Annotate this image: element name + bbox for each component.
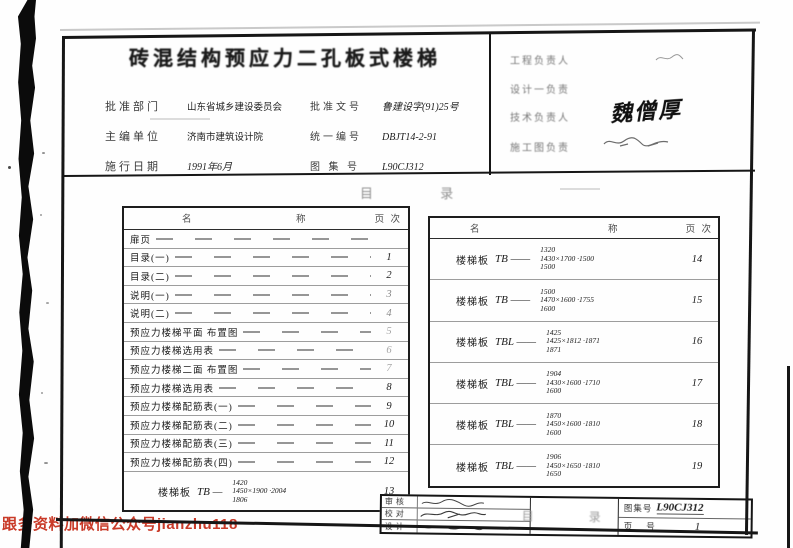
toc-row-page: 10	[376, 419, 402, 430]
toc-row-page: 16	[684, 336, 710, 347]
toc-row-stair-plank: 楼梯板 TBL —— 1906 1450×1650 ·1810 1650 19	[430, 445, 718, 486]
section-heading: 目 录	[360, 183, 485, 202]
leader-line	[175, 275, 371, 277]
toc-row-name: 楼梯板	[456, 293, 489, 308]
toc-row-name: 预应力楼梯二面 布置图	[130, 362, 238, 376]
toc-row: 扉页	[124, 230, 408, 249]
title-block-label: 校对	[382, 508, 418, 520]
plank-designation-stack: 1420 1450×1900 ·2004 1806	[232, 479, 286, 505]
leader-line	[175, 256, 371, 258]
signature-scribble-icon	[600, 134, 672, 150]
toc-row: 预应力楼梯选用表6	[124, 342, 408, 361]
toc-row-name: 预应力楼梯平面 布置图	[130, 325, 238, 339]
toc-row-page: 14	[684, 254, 710, 265]
toc-row-page: 1	[376, 252, 402, 263]
field-value: 山东省城乡建设委员会	[187, 103, 282, 113]
plank-designation-stack: 1500 1470×1600 ·1755 1600	[540, 288, 594, 314]
field-effective-date: 施行日期 1991年6月	[105, 157, 232, 175]
field-label: 批准部门	[105, 98, 183, 114]
leader-line	[175, 294, 371, 296]
toc-row-stair-plank: 楼梯板 TBL —— 1904 1430×1600 ·1710 1600 17	[430, 363, 718, 404]
toc-table-left: 名 称 页 次 扉页 目录(一)1 目录(二)2 说明(一)3 说明(二)4 预…	[122, 206, 410, 512]
toc-row-page: 3	[376, 289, 402, 300]
leader-line	[219, 349, 371, 351]
toc-row-stair-plank: 楼梯板 TB — 1420 1450×1900 ·2004 1806 13	[124, 472, 408, 512]
scan-speck	[46, 302, 49, 304]
toc-row-stair-plank: 楼梯板 TB —— 1500 1470×1600 ·1755 1600 15	[430, 280, 718, 321]
stack-line: 1600	[540, 305, 594, 314]
field-value: 鲁建设字(91)25号	[382, 102, 459, 113]
plank-designation-stack: 1320 1430×1700 ·1500 1500	[540, 246, 594, 272]
field-label: 技术负责人	[510, 109, 570, 124]
scan-speck	[41, 392, 43, 394]
atlas-number-row: 图集号 L90CJ312	[619, 499, 751, 519]
plank-designation-stack: 1906 1450×1650 ·1810 1650	[546, 453, 600, 479]
stack-line: 1500	[540, 263, 594, 272]
toc-row: 说明(二)4	[124, 304, 408, 323]
leader-line	[156, 238, 371, 240]
stack-line: 1600	[546, 387, 600, 396]
toc-header-name-b: 称	[296, 211, 306, 225]
toc-row-page: 15	[684, 295, 710, 306]
plank-model: TB ——	[495, 253, 530, 265]
toc-row: 目录(一)1	[124, 249, 408, 268]
field-label: 统一编号	[310, 128, 378, 143]
toc-row-name: 楼梯板	[456, 334, 489, 349]
toc-row-name: 目录(二)	[130, 269, 170, 283]
leader-line	[243, 368, 371, 370]
leader-line	[243, 331, 371, 333]
leader-line	[238, 442, 371, 444]
toc-header-page: 页 次	[686, 221, 713, 235]
frame-left-line	[60, 37, 65, 548]
field-project-leader: 工程负责人	[510, 51, 570, 69]
toc-row: 预应力楼梯配筋表(四)12	[124, 453, 408, 472]
toc-header-name-b: 称	[608, 221, 618, 235]
toc-row-name: 楼梯板	[456, 252, 489, 267]
toc-header-row: 名 称 页 次	[430, 218, 718, 239]
field-design-leader: 设计一负责	[510, 80, 570, 98]
toc-row-page: 11	[376, 438, 402, 449]
toc-table-right: 名 称 页 次 楼梯板 TB —— 1320 1430×1700 ·1500 1…	[428, 216, 720, 488]
scan-right-edge-line	[787, 366, 790, 548]
signature-scribble-icon	[652, 52, 686, 64]
field-technical-leader: 技术负责人	[510, 108, 570, 126]
toc-row-name: 预应力楼梯配筋表(二)	[130, 418, 233, 432]
header-vertical-divider	[489, 33, 491, 175]
toc-row-name: 预应力楼梯选用表	[130, 381, 214, 395]
toc-row-page: 12	[376, 456, 402, 467]
scan-streak	[150, 118, 210, 120]
stack-line: 1600	[546, 429, 600, 438]
plank-model: TBL ——	[495, 460, 536, 472]
toc-row-stair-plank: 楼梯板 TB —— 1320 1430×1700 ·1500 1500 14	[430, 239, 718, 280]
plank-model: TBL ——	[495, 418, 536, 430]
toc-row: 预应力楼梯选用表8	[124, 379, 408, 398]
field-label: 施行日期	[105, 158, 183, 174]
toc-row-page: 17	[684, 378, 710, 389]
toc-header-row: 名 称 页 次	[124, 208, 408, 230]
field-value: 1991年6月	[187, 162, 232, 173]
stack-line: 1650	[546, 470, 600, 479]
toc-row-name: 目录(一)	[130, 250, 170, 264]
toc-row-page: 9	[376, 401, 402, 412]
plank-model: TBL ——	[495, 336, 536, 348]
field-drawing-leader: 施工图负责	[510, 138, 570, 156]
atlas-number-label: 图集号	[624, 502, 653, 514]
toc-row-page: 6	[376, 345, 402, 356]
toc-row: 目录(二)2	[124, 267, 408, 286]
toc-row-page: 2	[376, 270, 402, 281]
field-value: DBJT14-2-91	[382, 132, 437, 143]
watermark-text: 跟多资料加微信公众号jianzhu118	[2, 513, 238, 534]
stack-line: 1871	[546, 346, 600, 355]
field-unified-number: 统一编号 DBJT14-2-91	[310, 127, 437, 145]
title-block-label: 审核	[382, 496, 418, 508]
toc-row-page: 18	[684, 419, 710, 430]
plank-designation-stack: 1904 1430×1600 ·1710 1600	[546, 370, 600, 396]
toc-row-name: 楼梯板	[456, 417, 489, 432]
responsible-persons-block: 工程负责人 设计一负责 技术负责人 魏僧厚 施工图负责	[502, 46, 750, 176]
field-label: 主编单位	[105, 128, 183, 144]
plank-designation-stack: 1425 1425×1812 ·1871 1871	[546, 329, 600, 355]
toc-row-name: 扉页	[130, 232, 151, 246]
toc-header-name-a: 名	[182, 211, 192, 225]
toc-row-page: 7	[376, 363, 402, 374]
field-approving-dept: 批准部门 山东省城乡建设委员会	[105, 97, 282, 115]
toc-row-name: 说明(一)	[130, 288, 170, 302]
leader-line	[238, 424, 371, 426]
toc-row: 说明(一)3	[124, 286, 408, 305]
scan-speck	[44, 462, 48, 464]
frame-top-line	[62, 28, 756, 38]
field-approval-doc-no: 批准文号 鲁建设字(91)25号	[310, 97, 459, 115]
leader-line	[238, 461, 371, 463]
toc-row-page: 4	[376, 308, 402, 319]
field-label: 图 集 号	[310, 158, 378, 173]
toc-row: 预应力楼梯配筋表(三)11	[124, 435, 408, 454]
leader-line	[219, 387, 371, 389]
toc-row: 预应力楼梯平面 布置图5	[124, 323, 408, 342]
field-label: 批准文号	[310, 98, 378, 113]
toc-row-name: 预应力楼梯配筋表(四)	[130, 455, 233, 469]
scanned-atlas-title-page: 砖混结构预应力二孔板式楼梯 批准部门 山东省城乡建设委员会 主编单位 济南市建筑…	[0, 0, 793, 548]
toc-row-page: 8	[376, 382, 402, 393]
toc-header-name-a: 名	[470, 221, 480, 235]
toc-row-name: 预应力楼梯配筋表(三)	[130, 436, 233, 450]
toc-row-page: 19	[684, 461, 710, 472]
plank-model: TB —	[197, 486, 222, 498]
scan-streak	[560, 188, 600, 190]
leader-line	[175, 312, 371, 314]
field-label: 设计一负责	[510, 81, 570, 96]
field-label: 工程负责人	[510, 52, 570, 67]
scan-speck	[42, 152, 45, 154]
toc-row-name: 楼梯板	[158, 484, 191, 499]
plank-model: TBL ——	[495, 377, 536, 389]
leader-line	[238, 405, 371, 407]
toc-row-name: 预应力楼梯选用表	[130, 343, 214, 357]
toc-row-stair-plank: 楼梯板 TBL —— 1870 1450×1600 ·1810 1600 18	[430, 404, 718, 445]
toc-row: 预应力楼梯配筋表(一)9	[124, 397, 408, 416]
toc-header-page: 页 次	[375, 211, 402, 225]
field-value: 济南市建筑设计院	[187, 133, 263, 143]
sheet-title-text: 目 录	[522, 507, 627, 525]
toc-row-stair-plank: 楼梯板 TBL —— 1425 1425×1812 ·1871 1871 16	[430, 322, 718, 363]
plank-designation-stack: 1870 1450×1600 ·1810 1600	[546, 412, 600, 438]
page-number-row: 页 号 1	[619, 517, 751, 536]
signature-scribble-icon	[418, 509, 488, 520]
atlas-title: 砖混结构预应力二孔板式楼梯	[118, 42, 452, 71]
toc-row-page: 5	[376, 326, 402, 337]
toc-row-name: 说明(二)	[130, 306, 170, 320]
toc-row-name: 预应力楼梯配筋表(一)	[130, 399, 233, 413]
scan-speck	[40, 214, 42, 216]
plank-model: TB ——	[495, 294, 530, 306]
scan-speck	[8, 166, 11, 169]
toc-row-name: 楼梯板	[456, 459, 489, 474]
stack-line: 1806	[232, 496, 286, 505]
atlas-number-value: L90CJ312	[656, 502, 703, 516]
toc-row: 预应力楼梯配筋表(二)10	[124, 416, 408, 435]
toc-row: 预应力楼梯二面 布置图7	[124, 360, 408, 379]
handwritten-signature: 魏僧厚	[609, 92, 683, 129]
toc-row-name: 楼梯板	[456, 376, 489, 391]
signature-scribble-icon	[418, 497, 488, 508]
field-label: 施工图负责	[510, 139, 570, 154]
field-chief-editor-unit: 主编单位 济南市建筑设计院	[105, 127, 263, 145]
scan-binding-band	[17, 0, 36, 548]
